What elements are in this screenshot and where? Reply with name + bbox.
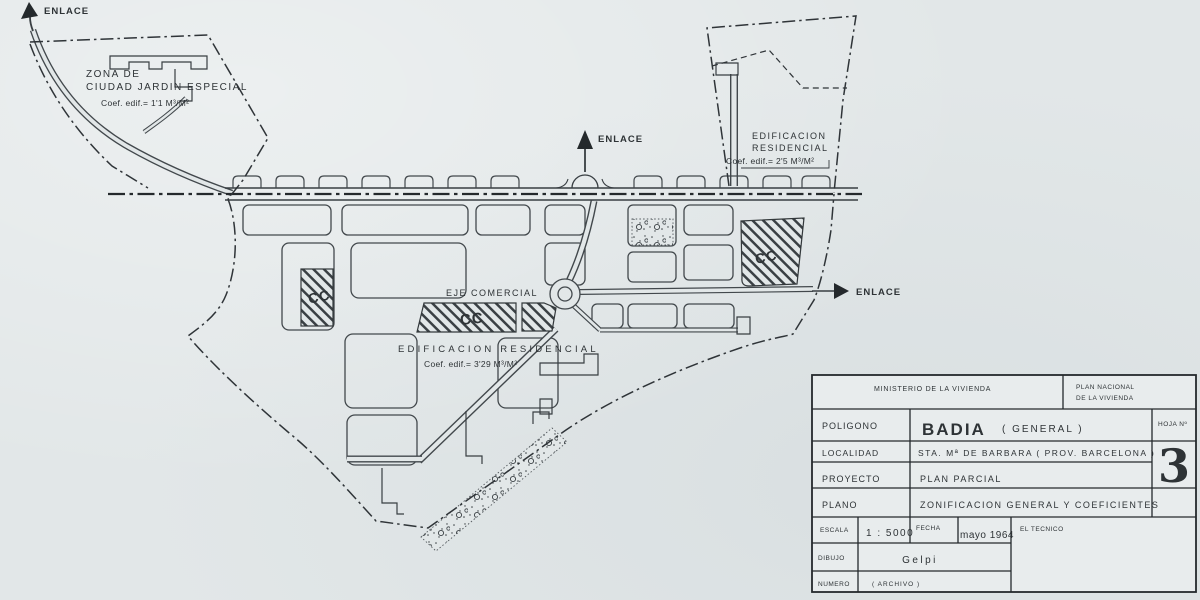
road-stub xyxy=(737,317,750,334)
junction-semicircle xyxy=(572,175,598,188)
garden-zone-label-line1: ZONA DE xyxy=(86,69,140,80)
garden-zone-label-line2: CIUDAD JARDIN ESPECIAL xyxy=(86,82,248,93)
arrow-right-icon xyxy=(834,283,849,299)
cc-label-center: CC xyxy=(459,310,484,329)
proyecto-value: PLAN PARCIAL xyxy=(920,474,1002,484)
junction-shoulder-left xyxy=(556,179,568,188)
junction-shoulder-right xyxy=(602,179,614,188)
parking-bays xyxy=(233,176,830,188)
ministerio-label: MINISTERIO DE LA VIVIENDA xyxy=(874,386,991,393)
building-outlines xyxy=(110,56,750,514)
fecha-label: FECHA xyxy=(916,525,941,532)
title-block: MINISTERIO DE LA VIVIENDA PLAN NACIONAL … xyxy=(812,375,1196,592)
eje-comercial-label: EJE COMERCIAL xyxy=(446,288,538,298)
commercial-center-strip-east xyxy=(522,303,556,331)
zoning-plan-drawing: ENLACE ENLACE ENLACE ZONA DE CIUDAD JARD… xyxy=(0,0,1200,600)
enlace-arrow-top-center xyxy=(577,130,593,172)
green-strip-south xyxy=(421,428,567,551)
city-block xyxy=(545,205,585,235)
residential-right-coef: Coef. edif.= 2'5 M³/M² xyxy=(726,156,814,166)
residential-right-label-line1: EDIFICACION xyxy=(752,131,827,141)
plan-nacional-line1: PLAN NACIONAL xyxy=(1076,384,1135,391)
road-stub xyxy=(540,354,598,375)
numero-value: ( ARCHIVO ) xyxy=(872,581,920,588)
garden-city-building xyxy=(110,56,207,69)
localidad-label: LOCALIDAD xyxy=(822,448,879,458)
city-block xyxy=(684,245,733,280)
roundabout xyxy=(550,279,580,309)
zoned-parcels xyxy=(301,218,804,551)
escala-label: ESCALA xyxy=(820,527,849,534)
residential-center-coef: Coef. edif.= 3'29 M³/M² xyxy=(424,359,517,369)
access-road-northwest-fill xyxy=(33,30,232,193)
road-stub xyxy=(382,468,404,514)
fecha-value: mayo 1964 xyxy=(960,530,1014,541)
arrow-up-icon xyxy=(577,130,593,149)
arrow-up-icon xyxy=(21,2,38,19)
residential-center-label: EDIFICACION RESIDENCIAL xyxy=(398,344,599,355)
city-block xyxy=(476,205,530,235)
hoja-number: 3 xyxy=(1158,439,1190,493)
city-block xyxy=(684,205,733,235)
boundary-northeast-pocket xyxy=(707,16,856,193)
hoja-label: HOJA Nº xyxy=(1158,421,1187,428)
city-block xyxy=(243,205,331,235)
enlace-arrow-right xyxy=(812,283,849,299)
localidad-value: STA. Mª DE BARBARA ( PROV. BARCELONA ) xyxy=(918,448,1155,458)
city-block xyxy=(628,304,677,328)
enlace-label-top-left: ENLACE xyxy=(44,6,89,17)
road-stub xyxy=(466,411,482,464)
city-block xyxy=(684,304,734,328)
plano-label: PLANO xyxy=(822,500,858,510)
green-zone-block xyxy=(632,219,673,245)
city-block xyxy=(342,205,468,235)
plan-nacional-line2: DE LA VIVIENDA xyxy=(1076,395,1134,402)
dibujo-label: DIBUJO xyxy=(818,555,845,562)
garden-zone-coef: Coef. edif.= 1'1 M³/M² xyxy=(101,98,189,108)
pocket-road-foot xyxy=(716,63,738,75)
residential-right-label-line2: RESIDENCIAL xyxy=(752,143,829,153)
dibujo-value: Gelpi xyxy=(902,555,938,566)
proyecto-label: PROYECTO xyxy=(822,474,880,484)
poligono-note: ( GENERAL ) xyxy=(1002,424,1084,435)
city-block xyxy=(628,252,676,282)
poligono-label: POLIGONO xyxy=(822,421,878,431)
access-road-northwest xyxy=(33,30,232,193)
enlace-label-right: ENLACE xyxy=(856,287,901,298)
tecnico-label: EL TECNICO xyxy=(1020,526,1064,533)
enlace-arrow-top-left xyxy=(21,2,38,31)
poligono-value: BADIA xyxy=(922,420,986,439)
roundabout-connector-fill xyxy=(574,306,600,330)
plano-value: ZONIFICACION GENERAL Y COEFICIENTES xyxy=(920,500,1159,510)
escala-value: 1 : 5000 xyxy=(866,528,914,539)
boundary-northwest xyxy=(30,35,268,199)
numero-label: NUMERO xyxy=(818,581,850,588)
enlace-label-top-center: ENLACE xyxy=(598,134,643,145)
